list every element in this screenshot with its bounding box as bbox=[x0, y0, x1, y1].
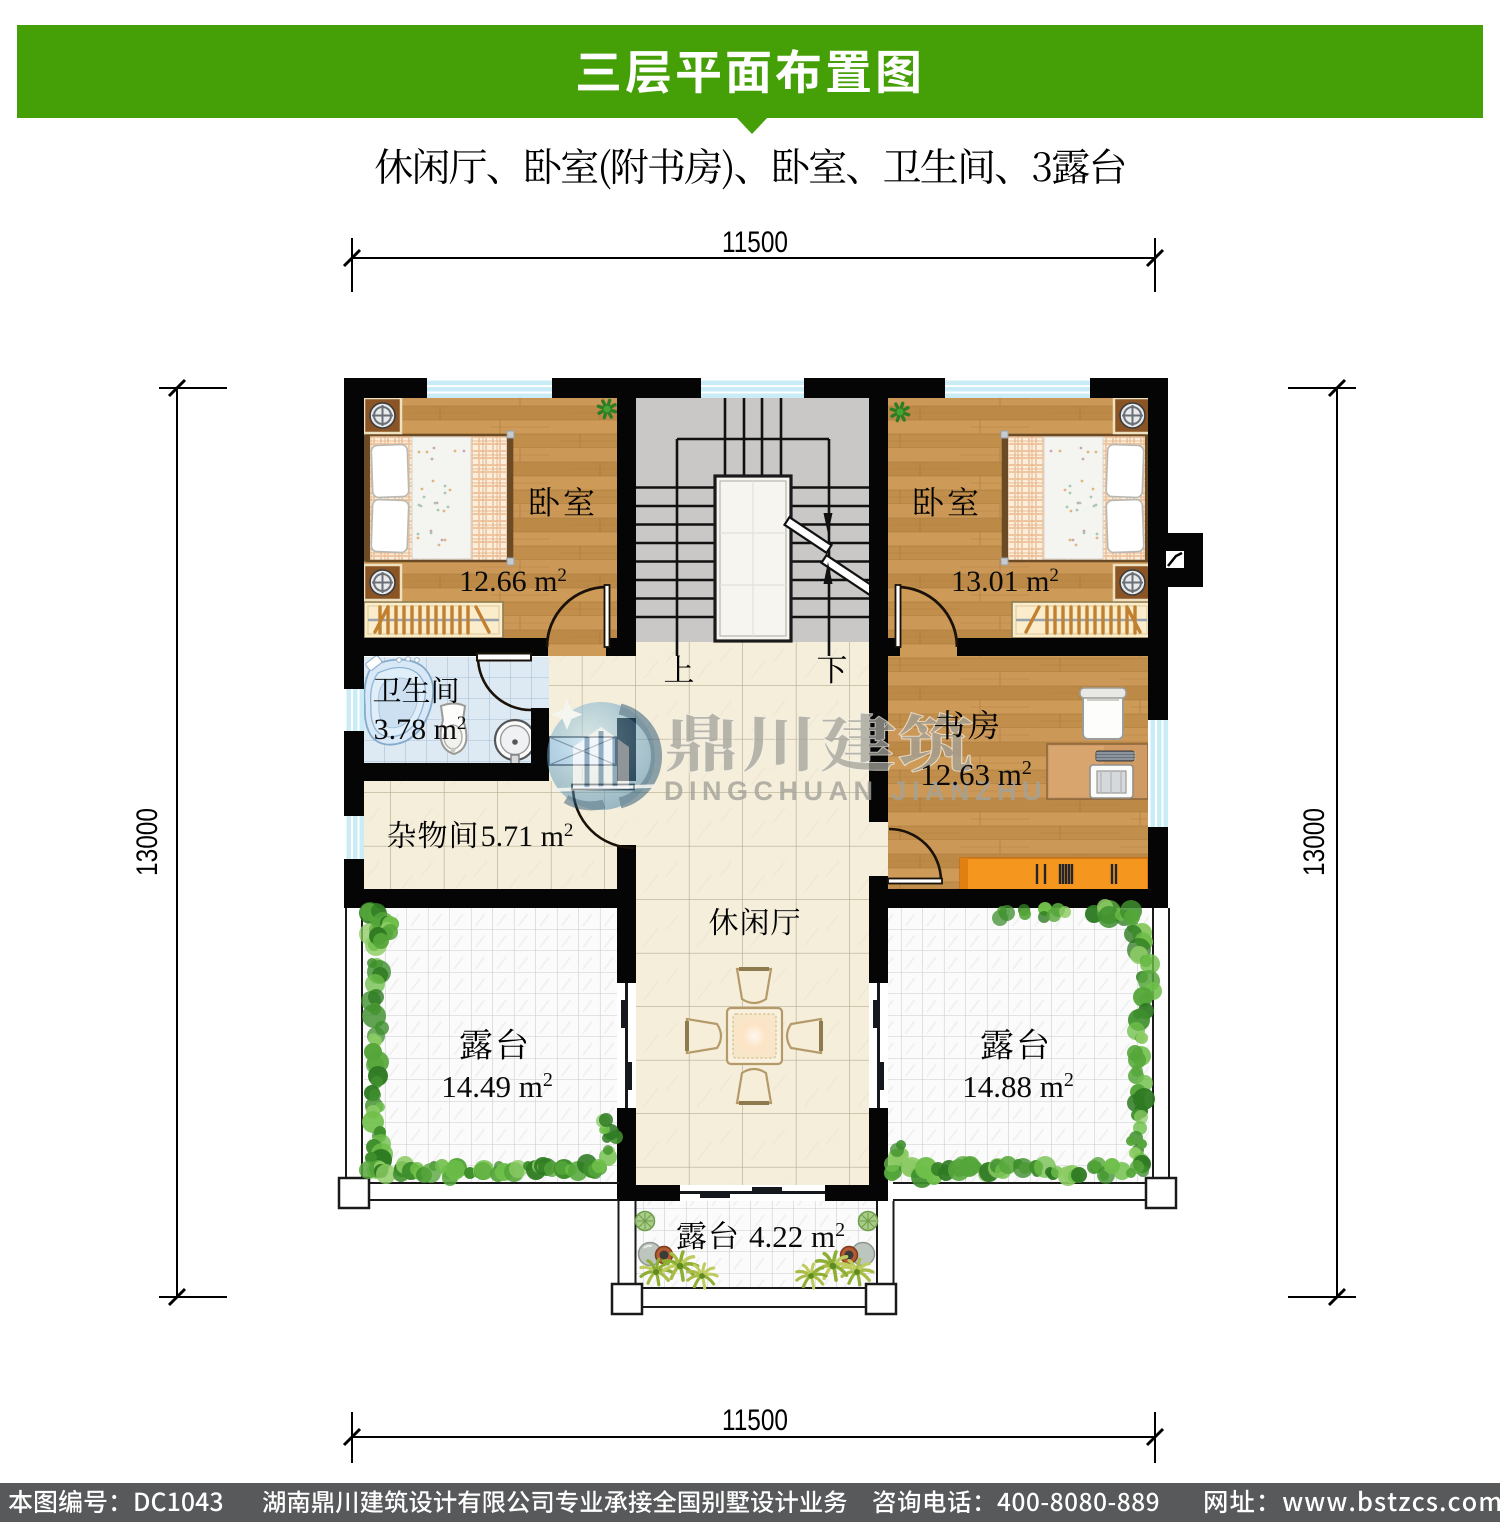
svg-text:14.49 m2: 14.49 m2 bbox=[441, 1069, 553, 1104]
svg-text:13000: 13000 bbox=[1298, 808, 1331, 876]
svg-text:11500: 11500 bbox=[722, 1404, 788, 1437]
svg-text:12.63 m2: 12.63 m2 bbox=[920, 757, 1032, 792]
svg-text:4.22 m2: 4.22 m2 bbox=[749, 1219, 845, 1254]
svg-text:14.88 m2: 14.88 m2 bbox=[962, 1069, 1074, 1104]
svg-text:13.01 m2: 13.01 m2 bbox=[951, 565, 1059, 599]
svg-text:11500: 11500 bbox=[722, 226, 788, 259]
svg-text:12.66 m2: 12.66 m2 bbox=[459, 565, 567, 599]
svg-text:13000: 13000 bbox=[131, 808, 164, 876]
svg-text:5.71 m2: 5.71 m2 bbox=[481, 820, 574, 854]
svg-text:3.78 m2: 3.78 m2 bbox=[374, 713, 467, 747]
